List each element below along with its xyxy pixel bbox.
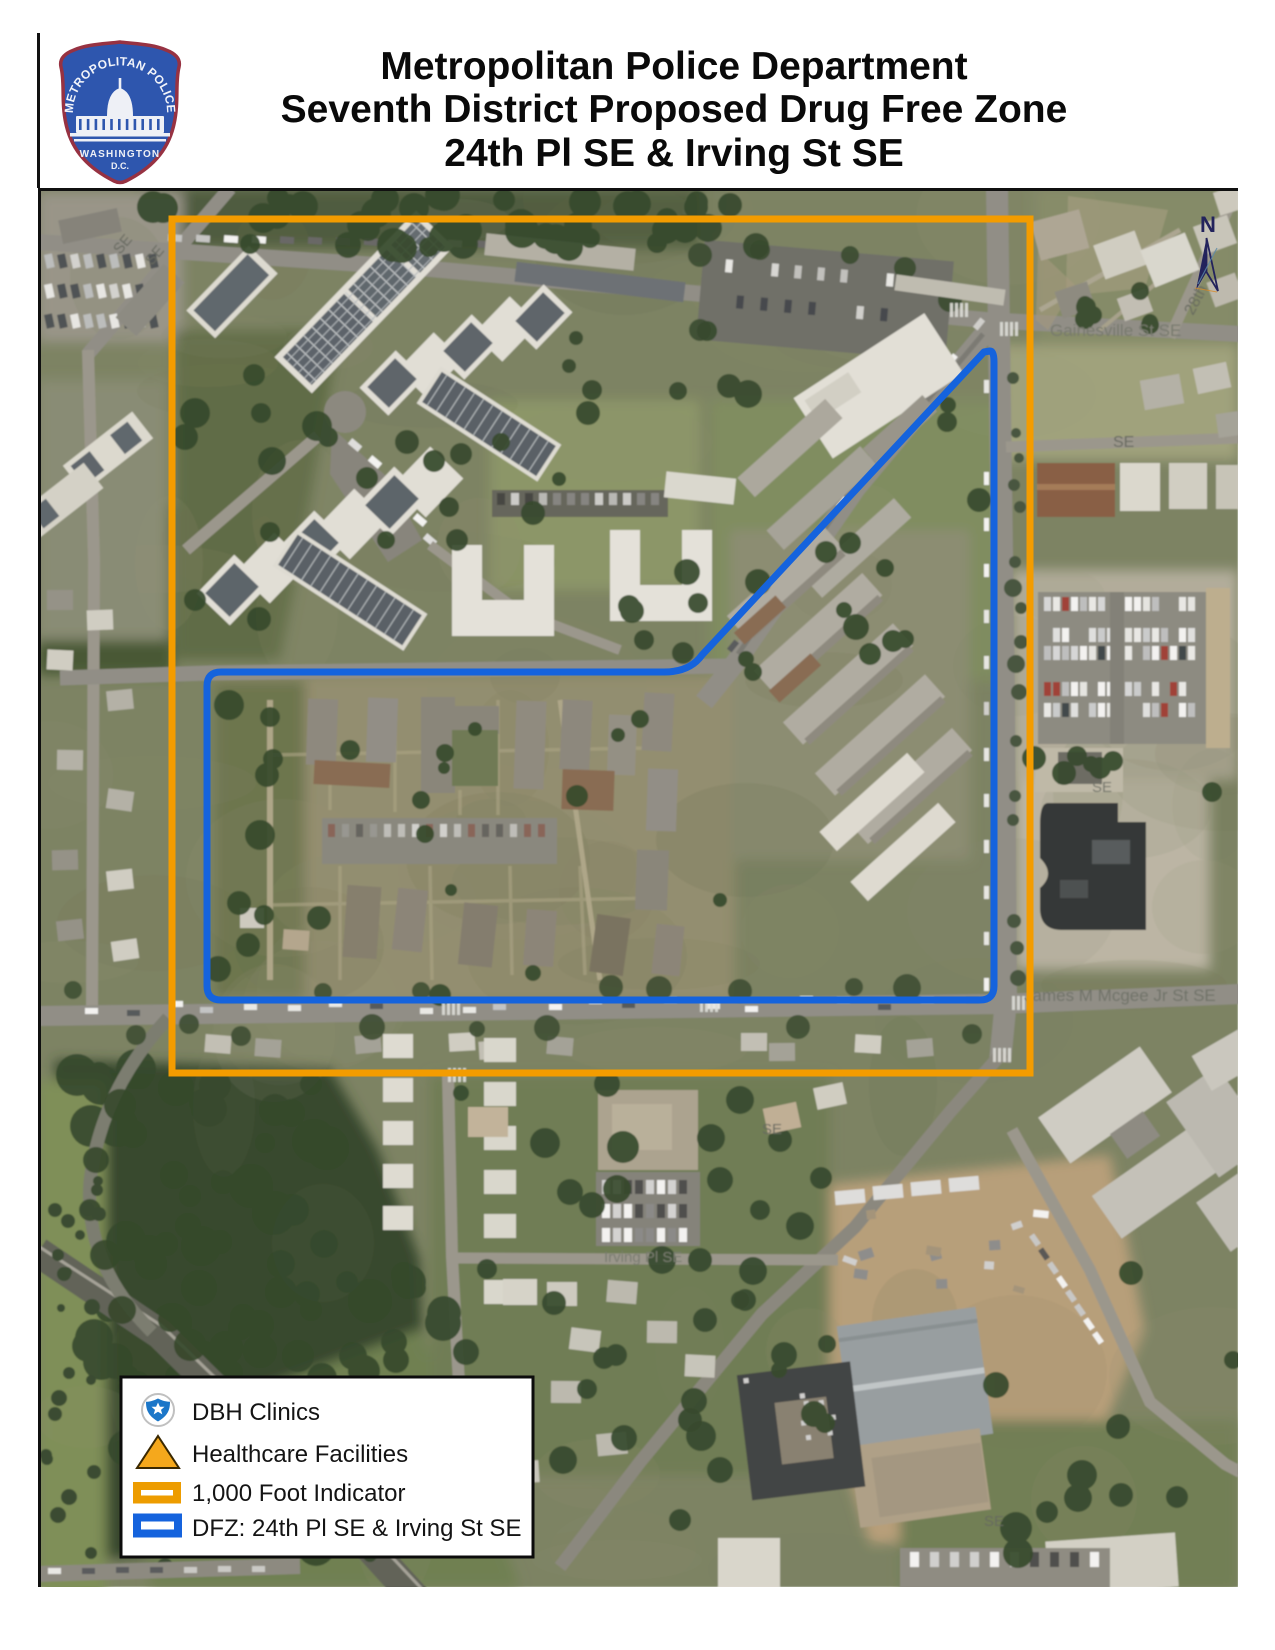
svg-text:1,000 Foot Indicator: 1,000 Foot Indicator	[192, 1480, 405, 1507]
svg-text:WASHINGTON: WASHINGTON	[80, 149, 161, 160]
svg-text:Healthcare Facilities: Healthcare Facilities	[192, 1441, 408, 1468]
svg-text:24th Pl SE & Irving St SE: 24th Pl SE & Irving St SE	[444, 132, 903, 175]
svg-text:Seventh District Proposed Drug: Seventh District Proposed Drug Free Zone	[281, 88, 1068, 131]
svg-text:DFZ: 24th Pl SE & Irving St SE: DFZ: 24th Pl SE & Irving St SE	[192, 1515, 521, 1542]
svg-text:Metropolitan Police Department: Metropolitan Police Department	[380, 45, 967, 88]
svg-text:D.C.: D.C.	[111, 161, 129, 171]
svg-text:N: N	[1200, 212, 1216, 237]
svg-text:DBH Clinics: DBH Clinics	[192, 1399, 320, 1426]
